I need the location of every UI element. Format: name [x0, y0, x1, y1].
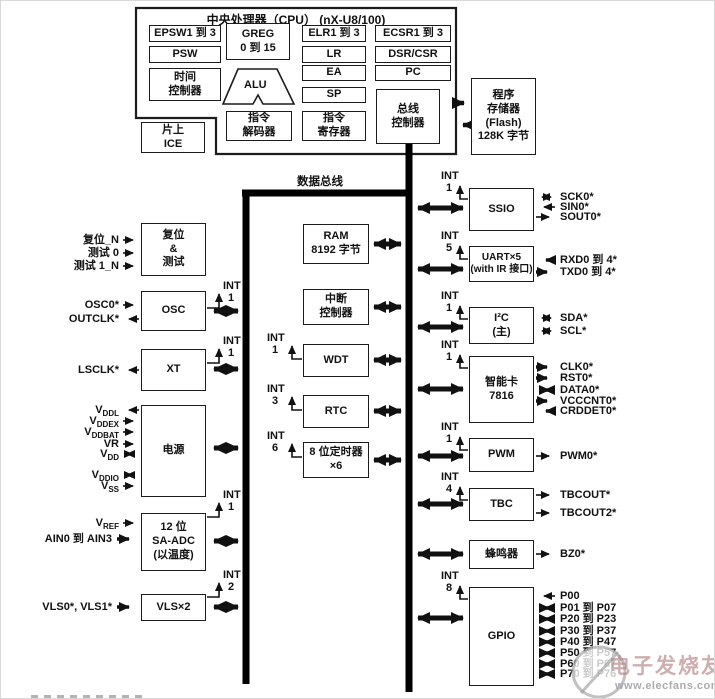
- smartcard-7816-box: 智能卡 7816: [469, 356, 534, 423]
- wdt-box: WDT: [303, 344, 369, 377]
- int-tag-ssio: INT1: [441, 171, 459, 194]
- signal-reset-n: 复位_N: [83, 234, 119, 246]
- signal-crddet0: CRDDET0*: [560, 405, 616, 417]
- cpu-pc-box: PC: [375, 65, 451, 81]
- on-chip-ice-box: 片上 ICE: [141, 122, 205, 153]
- signal-pwm0: PWM0*: [560, 450, 597, 462]
- cpu-alu-label: ALU: [244, 79, 267, 91]
- int-tag-xt: INT1: [223, 336, 241, 359]
- signal-vdd: VDD: [100, 448, 119, 464]
- osc-box: OSC: [141, 291, 206, 331]
- signal-ain0-ain3: AIN0 到 AIN3: [45, 533, 112, 545]
- int-tag-uart: INT5: [441, 231, 459, 254]
- cpu-greg-box: GREG 0 到 15: [226, 23, 290, 60]
- int-tag-adc: INT1: [223, 490, 241, 513]
- flash-bus-arrows: [456, 103, 471, 125]
- int-tag-tbc: INT4: [441, 472, 459, 495]
- cpu-bus-controller-box: 总线 控制器: [376, 89, 440, 144]
- tbc-box: TBC: [469, 488, 534, 521]
- right-thick-signals: [536, 260, 556, 674]
- signal-vref: VREF: [96, 517, 119, 533]
- signal-test0: 测试 0: [88, 247, 119, 259]
- int-tag-pwm: INT1: [441, 422, 459, 445]
- reset-test-box: 复位 & 测试: [141, 223, 206, 276]
- signal-test1-n: 测试 1_N: [74, 260, 119, 272]
- signal-txd0-4: TXD0 到 4*: [560, 266, 616, 278]
- signal-outclk: OUTCLK*: [69, 313, 119, 325]
- int-tag-osc: INT1: [223, 281, 241, 304]
- cpu-sp-box: SP: [302, 87, 366, 103]
- power-box: 电源: [141, 405, 206, 497]
- xt-box: XT: [141, 349, 206, 391]
- signal-scl: SCL*: [560, 325, 586, 337]
- timer8-box: 8 位定时器 ×6: [303, 442, 369, 478]
- rtc-box: RTC: [303, 395, 369, 428]
- cpu-epsw-box: EPSW1 到 3: [149, 25, 221, 42]
- cpu-ecsr-box: ECSR1 到 3: [375, 25, 451, 42]
- ssio-box: SSIO: [469, 188, 534, 231]
- signal-rst0: RST0*: [560, 372, 592, 384]
- int-tag-timer8: INT6: [267, 431, 285, 454]
- uart-box: UART×5 (with IR 接口): [469, 246, 534, 282]
- vls-box: VLS×2: [141, 594, 206, 621]
- interrupt-controller-box: 中断 控制器: [303, 289, 369, 325]
- signal-p70-p76: P70 到 P76: [560, 668, 616, 680]
- int-tag-rtc: INT3: [267, 384, 285, 407]
- int-tag-wdt: INT1: [267, 333, 285, 356]
- pwm-box: PWM: [469, 438, 534, 472]
- signal-p20-p23: P20 到 P23: [560, 613, 616, 625]
- block-diagram-page: 中央处理器（CPU） (nX-U8/100) EPSW1 到 3 PSW 时间 …: [0, 0, 715, 699]
- i2c-box: I²C (主): [469, 307, 534, 344]
- signal-rxd0-4: RXD0 到 4*: [560, 254, 617, 266]
- signal-bz0: BZ0*: [560, 548, 585, 560]
- cpu-dsr-csr-box: DSR/CSR: [375, 46, 451, 63]
- signal-osc0: OSC0*: [85, 299, 119, 311]
- int-tag-i2c: INT1: [441, 291, 459, 314]
- watermark-title: 电子发烧友: [609, 650, 715, 680]
- signal-vss: VSS: [101, 480, 119, 496]
- left-thin-signals: [123, 240, 139, 523]
- cpu-instruction-decoder-box: 指令 解码器: [226, 111, 292, 141]
- cpu-time-controller-box: 时间 控制器: [149, 68, 221, 101]
- cpu-ea-box: EA: [302, 65, 366, 81]
- right-thin-signals: [536, 197, 555, 596]
- ram-box: RAM 8192 字节: [303, 224, 369, 264]
- int-tag-gpio: INT8: [441, 571, 459, 594]
- int-tag-smartcard: INT1: [441, 340, 459, 363]
- signal-tbcout2: TBCOUT2*: [560, 507, 616, 519]
- cpu-lr-box: LR: [302, 46, 366, 63]
- cpu-instruction-register-box: 指令 寄存器: [302, 111, 366, 141]
- watermark-url: www.elecfans.com: [615, 680, 715, 692]
- signal-tbcout: TBCOUT*: [560, 489, 610, 501]
- gpio-box: GPIO: [469, 587, 534, 686]
- middle-bus-connectors: [374, 244, 401, 460]
- data-bus-label: 数据总线: [297, 173, 343, 189]
- signal-lsclk: LSCLK*: [78, 364, 119, 376]
- left-thick-signals: [117, 539, 129, 607]
- footnote-fragment: [31, 695, 146, 699]
- int-tag-vls: INT2: [223, 570, 241, 593]
- cpu-psw-box: PSW: [149, 46, 221, 63]
- signal-p00: P00: [560, 590, 580, 602]
- signal-sda: SDA*: [560, 312, 588, 324]
- cpu-elr-box: ELR1 到 3: [302, 25, 366, 42]
- signal-vls0-vls1: VLS0*, VLS1*: [42, 601, 112, 613]
- buzzer-box: 蜂鸣器: [469, 540, 534, 569]
- flash-memory-box: 程序 存储器 (Flash) 128K 字节: [471, 78, 536, 155]
- signal-sout0: SOUT0*: [560, 211, 601, 223]
- right-bus-connectors: [418, 208, 463, 618]
- sa-adc-box: 12 位 SA-ADC (以温度): [141, 513, 206, 571]
